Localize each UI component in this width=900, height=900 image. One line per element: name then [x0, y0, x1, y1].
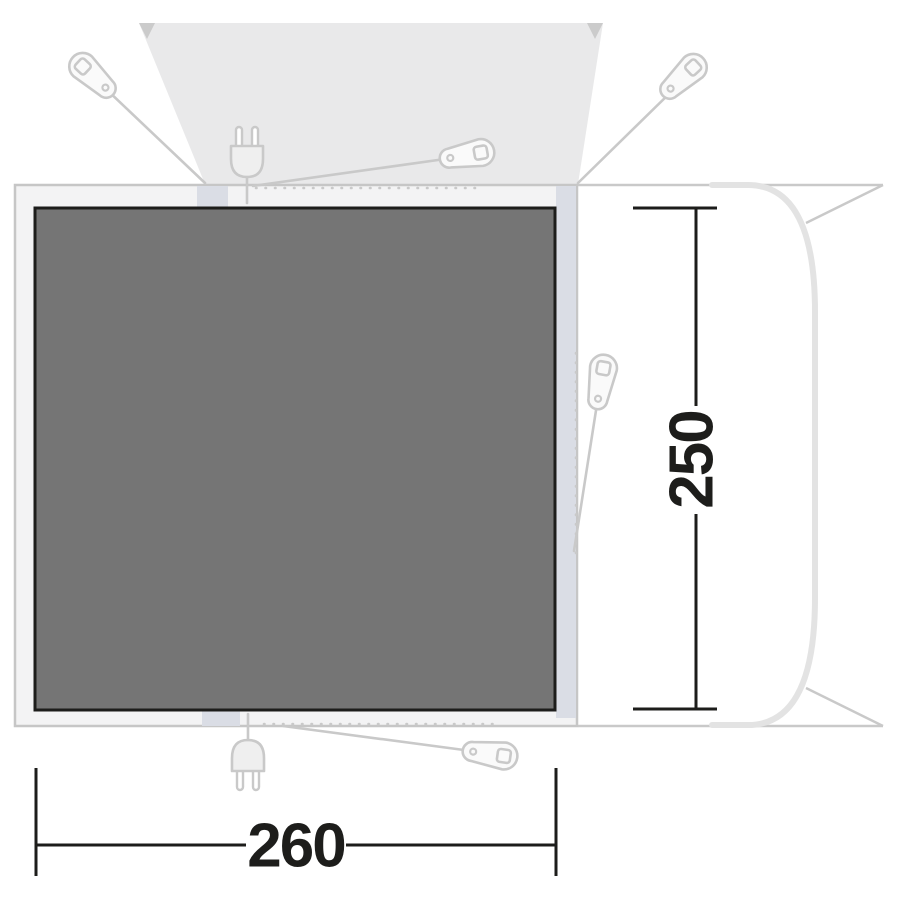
vehicle-outline	[578, 185, 883, 726]
canopy-panel	[139, 23, 603, 184]
vehicle-break-line-bottom	[806, 688, 883, 726]
door-marker-top	[197, 186, 228, 207]
guy-line-bottom	[283, 726, 464, 750]
depth-value-label: 250	[658, 411, 727, 508]
guy-line-top-right	[578, 90, 673, 183]
tent-peg-icon-bottom	[461, 737, 519, 771]
width-value-label: 260	[247, 812, 344, 881]
floorplan-canvas: 260 250	[0, 0, 900, 900]
tent-peg-icon-top-right	[654, 48, 713, 105]
vehicle-front-curve	[712, 185, 815, 725]
dimension-depth: 250	[633, 208, 727, 709]
groundsheet	[35, 208, 555, 710]
vehicle-break-line-top	[806, 185, 883, 223]
floorplan-diagram: 260 250	[0, 0, 900, 900]
vehicle-connection-band	[556, 186, 576, 718]
dimension-width: 260	[36, 768, 556, 881]
tent-peg-icon-top-left	[64, 47, 123, 104]
tent-peg-icon-right-side	[583, 353, 619, 412]
door-marker-bottom	[202, 709, 240, 726]
